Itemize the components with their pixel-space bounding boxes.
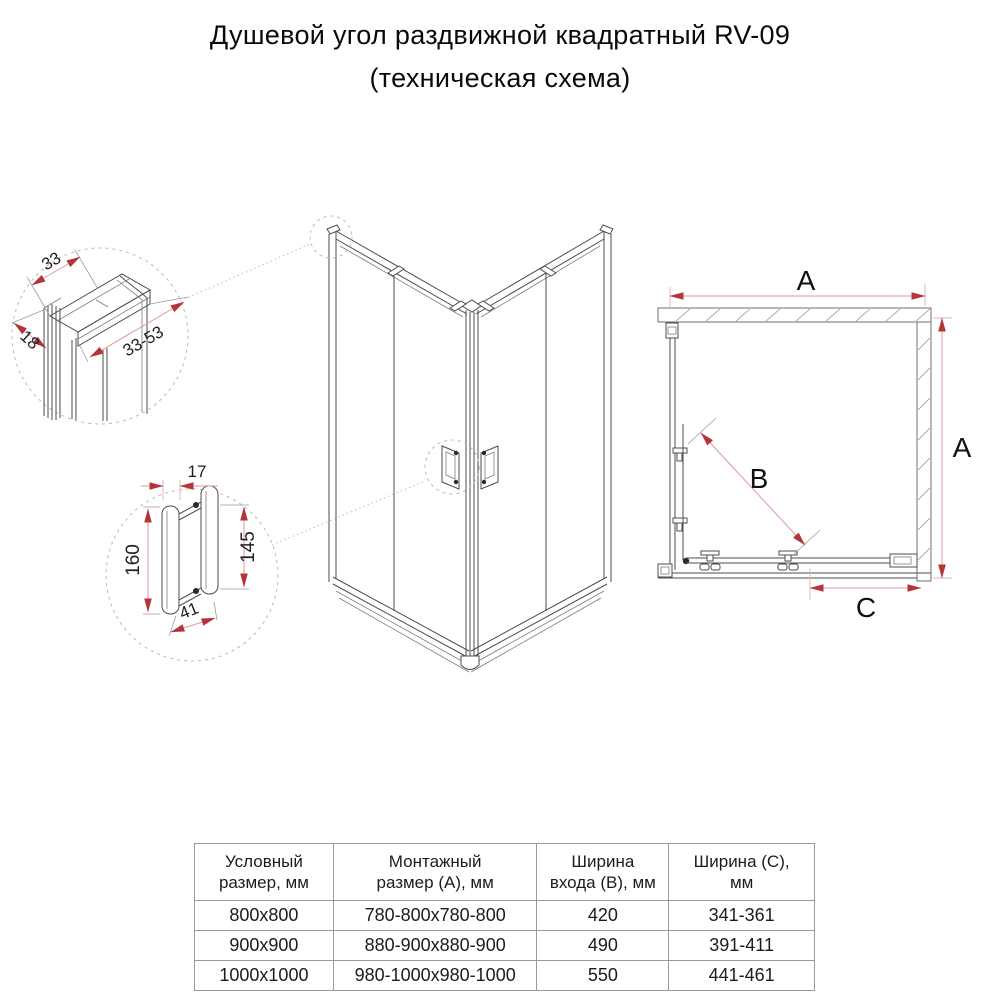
table-row: 900x900 880-900x880-900 490 391-411 (195, 931, 815, 961)
table-cell: 550 (537, 961, 669, 991)
handle-dim-145: 145 (238, 531, 259, 563)
handle-dim-41: 41 (177, 599, 202, 624)
header-line: размер, мм (199, 872, 329, 893)
plan-dim-A-depth: A (953, 432, 972, 463)
profile-dim-33-53: 33-53 (120, 322, 167, 360)
header-line: Ширина (541, 851, 664, 872)
plan-dim-C-door: C (856, 592, 876, 623)
plan-roller (700, 551, 720, 570)
table-cell: 341-361 (669, 901, 815, 931)
table-cell: 391-411 (669, 931, 815, 961)
table-row: 800x800 780-800x780-800 420 341-361 (195, 901, 815, 931)
plan-dim-A-width: A (797, 265, 816, 296)
profile-leader-line (180, 244, 310, 301)
table-cell: 441-461 (669, 961, 815, 991)
table-cell: 800x800 (195, 901, 334, 931)
dimensions-table: Условный размер, мм Монтажный размер (А)… (194, 843, 815, 991)
plan-view: A A B C (658, 265, 972, 623)
profile-dim-18: 18 (16, 327, 43, 354)
isometric-corner-view (180, 216, 613, 672)
profile-detail-callout: 33 18 33-53 (12, 248, 188, 424)
table-cell: 900x900 (195, 931, 334, 961)
table-cell: 880-900x880-900 (333, 931, 537, 961)
table-cell: 1000x1000 (195, 961, 334, 991)
handle-leader-line (272, 481, 425, 545)
table-cell: 420 (537, 901, 669, 931)
header-line: мм (673, 872, 810, 893)
table-header-row: Условный размер, мм Монтажный размер (А)… (195, 844, 815, 901)
header-line: входа (В), мм (541, 872, 664, 893)
table-cell: 980-1000x980-1000 (333, 961, 537, 991)
header-line: размер (А), мм (338, 872, 533, 893)
plan-roller (778, 551, 798, 570)
header-width-c: Ширина (С), мм (669, 844, 815, 901)
header-line: Ширина (С), (673, 851, 810, 872)
table-row: 1000x1000 980-1000x980-1000 550 441-461 (195, 961, 815, 991)
table-cell: 490 (537, 931, 669, 961)
handle-dim-160: 160 (123, 544, 144, 576)
header-line: Условный (199, 851, 329, 872)
header-entry-width: Ширина входа (В), мм (537, 844, 669, 901)
technical-scheme-page: Душевой угол раздвижной квадратный RV-09… (0, 0, 1000, 1000)
plan-dim-B-entry: B (750, 463, 769, 494)
header-mounting-size: Монтажный размер (А), мм (333, 844, 537, 901)
header-nominal-size: Условный размер, мм (195, 844, 334, 901)
table-cell: 780-800x780-800 (333, 901, 537, 931)
handle-detail-callout: 17 160 145 41 (106, 462, 278, 661)
handle-dim-17: 17 (188, 462, 207, 481)
header-line: Монтажный (338, 851, 533, 872)
